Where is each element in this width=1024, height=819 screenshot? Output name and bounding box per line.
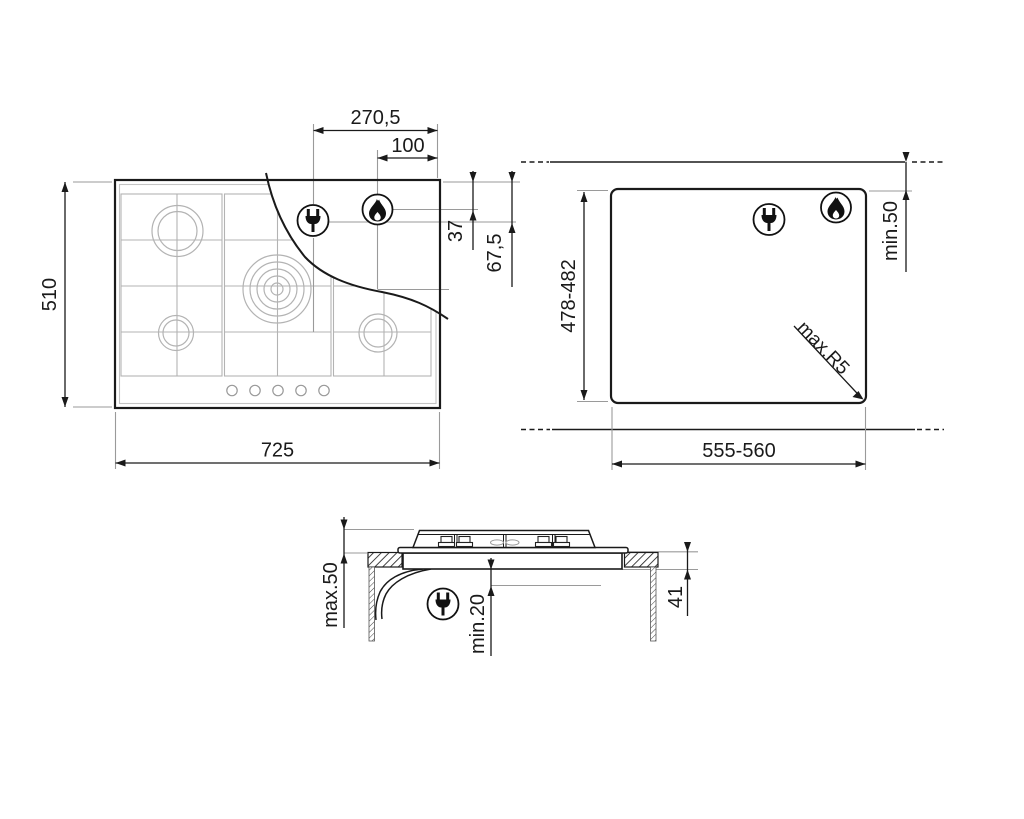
- dim-270-5-label: 270,5: [350, 107, 400, 129]
- knob: [250, 385, 260, 395]
- dim-cutout-depth: 478-482: [558, 192, 588, 400]
- dim-478-482-label: 478-482: [558, 259, 580, 332]
- cutout-view: 478-482 min.50 max.R5 555-560: [521, 152, 944, 470]
- dim-height-above-worktop: max.50: [320, 517, 348, 628]
- knob: [273, 385, 283, 395]
- hob-body-section: [403, 553, 622, 569]
- hob-installation-drawing: 270,5 100 37 67,5 510: [0, 0, 1024, 819]
- cabinet-wall-right: [651, 567, 657, 641]
- burner-front-left: [159, 316, 194, 351]
- knob: [227, 385, 237, 395]
- knob: [319, 385, 329, 395]
- gas-flame-icon: [363, 195, 393, 225]
- worktop-section-right: [625, 553, 659, 568]
- section-view: max.50 min.20 41: [320, 517, 698, 656]
- cabinet-wall-left: [369, 567, 375, 641]
- grate-profile: [413, 531, 595, 548]
- dim-flame-from-rear: 37: [445, 171, 477, 250]
- power-cable: [376, 569, 431, 620]
- cutout-outline: [611, 189, 866, 403]
- dim-37-label: 37: [445, 220, 467, 242]
- hob-top-plate: [398, 548, 628, 554]
- break-region-mask: [266, 176, 440, 313]
- dim-plug-from-right: 270,5: [314, 107, 438, 134]
- dim-rear-clearance: min.50: [880, 152, 910, 272]
- burner-front-right: [359, 314, 397, 352]
- dim-min50-label: min.50: [880, 201, 902, 261]
- dim-clearance-below: min.20: [467, 558, 495, 656]
- power-plug-icon: [754, 204, 785, 235]
- power-plug-icon: [298, 205, 329, 236]
- dim-plug-from-rear: 67,5: [484, 171, 516, 287]
- dim-flame-from-right: 100: [378, 135, 438, 162]
- gas-flame-icon: [821, 193, 851, 223]
- dim-555-560-label: 555-560: [702, 440, 775, 462]
- dim-depth: 510: [39, 182, 69, 407]
- dim-width: 725: [116, 440, 440, 467]
- dim-depth-below-worktop: 41: [665, 542, 691, 616]
- dim-min20-label: min.20: [467, 594, 489, 654]
- dim-100-label: 100: [391, 135, 424, 157]
- drawing-canvas: 270,5 100 37 67,5 510: [0, 0, 1024, 819]
- control-knobs: [227, 385, 329, 395]
- worktop-section-left: [368, 553, 402, 568]
- power-plug-icon: [428, 589, 459, 620]
- top-view: 270,5 100 37 67,5 510: [39, 107, 520, 469]
- knob: [296, 385, 306, 395]
- leader-lines: [73, 124, 520, 469]
- dim-cutout-width: 555-560: [612, 440, 866, 468]
- dim-41-label: 41: [665, 586, 687, 608]
- dim-510-label: 510: [39, 278, 61, 311]
- dim-67-5-label: 67,5: [484, 234, 506, 273]
- dim-max50-label: max.50: [320, 562, 342, 628]
- dim-725-label: 725: [261, 440, 294, 462]
